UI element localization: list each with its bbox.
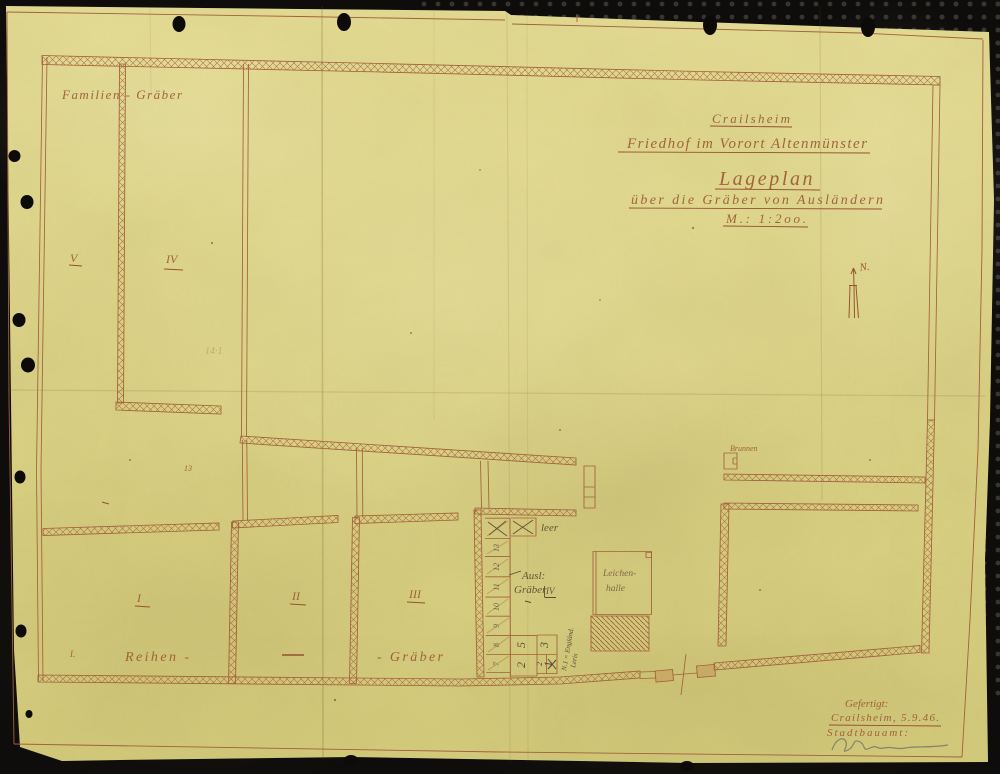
svg-text:III: III (408, 587, 422, 601)
svg-text:Stadtbauamt:: Stadtbauamt: (827, 727, 908, 739)
svg-text:IV: IV (545, 586, 556, 596)
svg-text:13: 13 (492, 544, 501, 552)
svg-text:- Gräber: - Gräber (377, 650, 444, 665)
svg-text:Gefertigt:: Gefertigt: (845, 698, 888, 710)
svg-text:11: 11 (492, 583, 501, 590)
svg-text:12: 12 (492, 563, 501, 571)
svg-text:Gräber: Gräber (514, 584, 547, 596)
svg-text:I.: I. (69, 649, 75, 659)
svg-text:leer: leer (541, 522, 559, 534)
svg-text:3: 3 (537, 642, 551, 649)
svg-text:14·1: 14·1 (205, 346, 223, 357)
svg-text:über die Gräber von Ausländern: über die Gräber von Ausländern (631, 193, 883, 208)
svg-text:10: 10 (492, 603, 501, 611)
svg-text:9: 9 (492, 624, 501, 628)
svg-text:13: 13 (184, 464, 192, 473)
svg-text:5: 5 (514, 642, 528, 648)
svg-text:halle: halle (606, 584, 625, 594)
svg-text:Friedhof im Vorort Altenmünste: Friedhof im Vorort Altenmünster (626, 136, 867, 152)
svg-text:2: 2 (514, 662, 528, 668)
svg-text:Crailsheim: Crailsheim (712, 111, 790, 126)
svg-text:Leichen-: Leichen- (602, 569, 636, 579)
svg-text:Brunnen: Brunnen (730, 444, 758, 453)
svg-text:Lageplan: Lageplan (718, 168, 813, 190)
svg-text:II: II (291, 589, 301, 603)
svg-text:8: 8 (492, 643, 501, 647)
svg-text:Ausl:: Ausl: (521, 570, 545, 582)
svg-text:IV: IV (165, 252, 179, 266)
svg-text:Familien - Gräber: Familien - Gräber (61, 87, 183, 102)
svg-text:N.: N. (858, 261, 871, 274)
svg-text:Crailsheim, 5.9.46.: Crailsheim, 5.9.46. (831, 712, 939, 724)
